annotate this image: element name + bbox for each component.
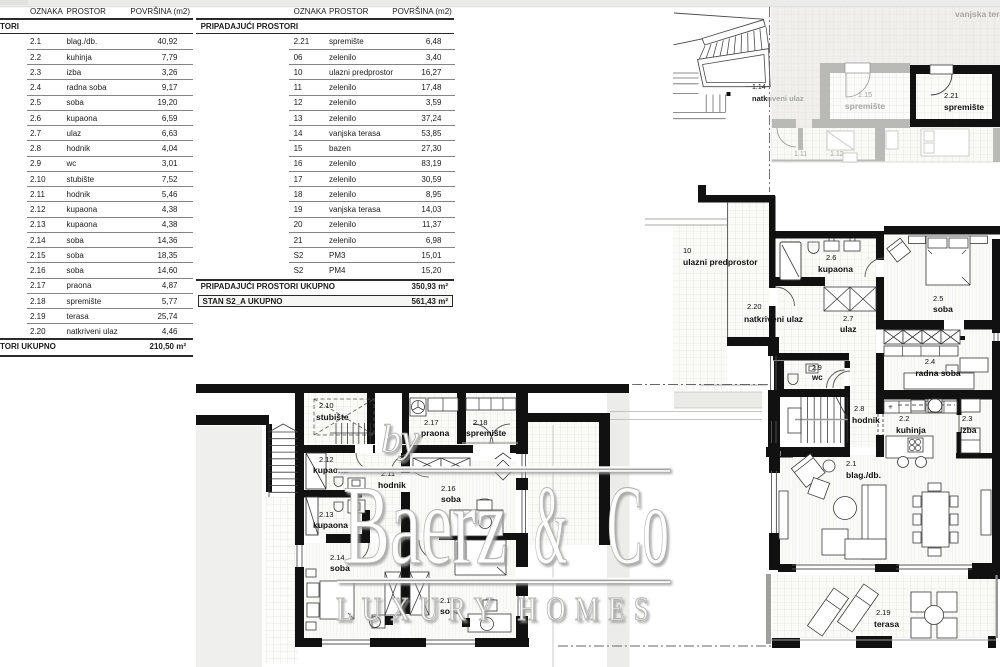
svg-text:ulaz: ulaz: [840, 324, 857, 334]
svg-text:vanjska tera: vanjska tera: [955, 9, 1000, 19]
svg-text:2.7: 2.7: [843, 314, 853, 323]
svg-text:natk: natk: [752, 94, 768, 103]
svg-text:2.10: 2.10: [319, 401, 334, 410]
svg-text:2.18: 2.18: [473, 418, 488, 427]
svg-text:by: by: [381, 416, 419, 461]
svg-text:natkriveni ulaz: natkriveni ulaz: [744, 314, 803, 324]
svg-text:2.19: 2.19: [876, 608, 891, 617]
svg-text:terasa: terasa: [874, 619, 899, 629]
svg-text:2.8: 2.8: [854, 404, 864, 413]
svg-text:2.6: 2.6: [826, 253, 836, 262]
svg-text:2.9: 2.9: [812, 365, 822, 372]
svg-text:spremište: spremište: [466, 428, 506, 438]
svg-text:2.17: 2.17: [424, 418, 439, 427]
svg-text:blag./db.: blag./db.: [846, 470, 881, 480]
svg-text:2.2: 2.2: [899, 414, 909, 423]
svg-text:radna soba: radna soba: [915, 368, 961, 378]
svg-text:praona: praona: [421, 428, 450, 438]
svg-text:stubište: stubište: [316, 412, 349, 422]
svg-text:kuhinja: kuhinja: [896, 425, 926, 435]
svg-text:kupaona: kupaona: [818, 264, 853, 274]
svg-text:spremište: spremište: [845, 101, 885, 111]
svg-text:2.21: 2.21: [944, 91, 959, 100]
svg-text:1.11: 1.11: [794, 151, 807, 158]
svg-text:&: &: [534, 463, 567, 588]
svg-text:1.14: 1.14: [752, 84, 766, 91]
svg-text:2.20: 2.20: [747, 302, 762, 311]
svg-text:Baerz: Baerz: [343, 463, 507, 588]
svg-text:10: 10: [683, 246, 691, 255]
svg-text:wc: wc: [811, 373, 823, 382]
svg-text:soba: soba: [933, 304, 953, 314]
svg-text:1.15: 1.15: [858, 90, 873, 99]
svg-text:Co: Co: [607, 463, 669, 588]
svg-text:2.3: 2.3: [962, 414, 972, 423]
svg-text:1.12: 1.12: [830, 151, 844, 158]
svg-text:spremište: spremište: [944, 102, 984, 112]
svg-text:2.4: 2.4: [925, 357, 935, 366]
svg-text:2.5: 2.5: [933, 294, 943, 303]
svg-text:ulazni predprostor: ulazni predprostor: [683, 257, 758, 267]
svg-text:izba: izba: [960, 425, 977, 435]
svg-text:hodnik: hodnik: [852, 415, 880, 425]
svg-text:2.12: 2.12: [319, 455, 334, 464]
svg-text:✳: ✳: [888, 404, 893, 411]
svg-text:LUXURY HOMES: LUXURY HOMES: [336, 591, 658, 628]
svg-text:2.1: 2.1: [846, 459, 856, 468]
svg-text:riveni ulaz: riveni ulaz: [767, 94, 804, 103]
svg-text:2.13: 2.13: [319, 510, 334, 519]
